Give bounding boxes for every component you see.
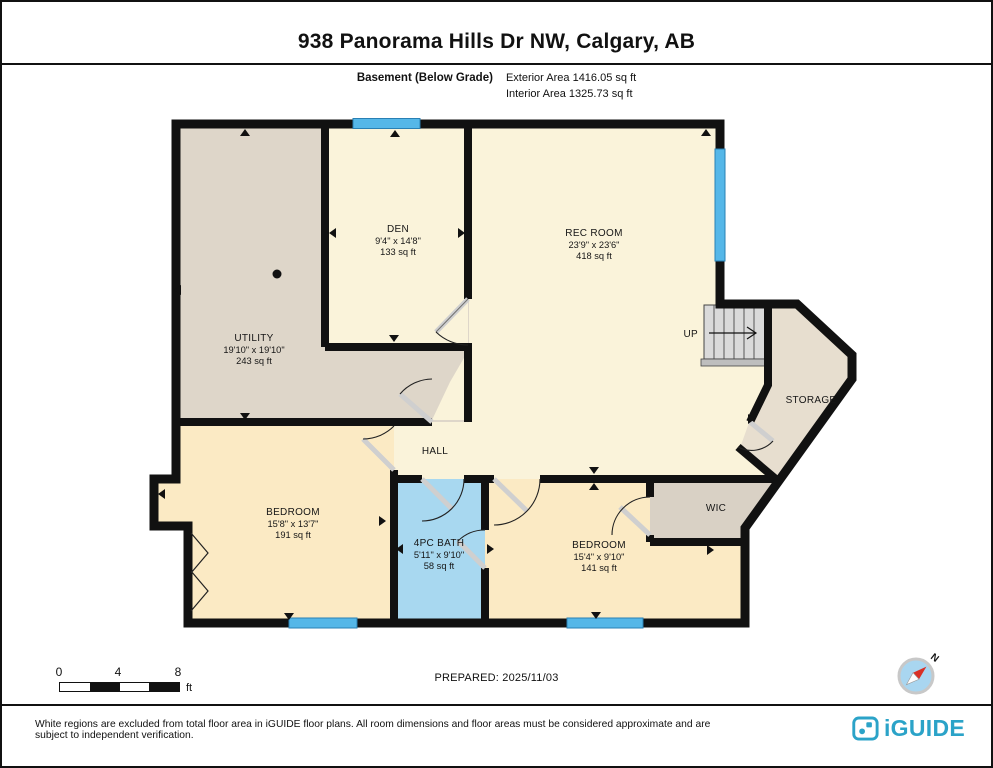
svg-text:243 sq ft: 243 sq ft: [236, 356, 272, 366]
svg-text:15'4" x 9'10": 15'4" x 9'10": [574, 552, 625, 562]
svg-text:HALL: HALL: [422, 446, 448, 457]
iguide-wordmark: iGUIDE: [884, 715, 965, 742]
svg-text:5'11" x 9'10": 5'11" x 9'10": [414, 550, 464, 560]
room-label-storage: STORAGE: [786, 395, 837, 406]
prepared-date: PREPARED: 2025/11/03: [2, 672, 991, 684]
floorplan-drawing: DEN 9'4" x 14'8" 133 sq ft REC ROOM 23'9…: [2, 2, 993, 768]
window: [353, 119, 420, 129]
iguide-logo: iGUIDE: [851, 713, 965, 743]
svg-text:UP: UP: [684, 329, 699, 340]
svg-text:23'9" x 23'6": 23'9" x 23'6": [569, 240, 620, 250]
svg-text:15'8" x 13'7": 15'8" x 13'7": [268, 519, 319, 529]
svg-text:19'10" x 19'10": 19'10" x 19'10": [223, 345, 284, 355]
window: [289, 618, 357, 628]
room-label-hall: HALL: [422, 446, 448, 457]
stairs-up-label: UP: [684, 329, 699, 340]
stairs: [701, 305, 768, 366]
svg-text:WIC: WIC: [706, 503, 726, 514]
room-label-wic: WIC: [706, 503, 726, 514]
svg-text:418 sq ft: 418 sq ft: [576, 251, 612, 261]
svg-text:UTILITY: UTILITY: [234, 333, 273, 344]
svg-text:9'4" x 14'8": 9'4" x 14'8": [375, 236, 421, 246]
floorplan-page: 938 Panorama Hills Dr NW, Calgary, AB Ba…: [0, 0, 993, 768]
svg-text:BEDROOM: BEDROOM: [572, 540, 626, 551]
svg-text:STORAGE: STORAGE: [786, 395, 837, 406]
disclaimer-text: White regions are excluded from total fl…: [35, 719, 735, 741]
window: [715, 149, 725, 261]
svg-text:DEN: DEN: [387, 224, 409, 235]
compass-n-label: N: [928, 652, 940, 665]
window: [567, 618, 643, 628]
svg-text:141 sq ft: 141 sq ft: [581, 563, 617, 573]
svg-text:58 sq ft: 58 sq ft: [424, 561, 455, 571]
compass-icon: N: [886, 643, 950, 707]
iguide-camera-icon: [851, 713, 881, 743]
svg-text:133 sq ft: 133 sq ft: [380, 247, 416, 257]
svg-text:191 sq ft: 191 sq ft: [275, 530, 311, 540]
utility-floor-drain: [273, 270, 282, 279]
footer-bar: White regions are excluded from total fl…: [2, 704, 991, 766]
svg-text:BEDROOM: BEDROOM: [266, 507, 320, 518]
svg-text:4PC BATH: 4PC BATH: [414, 538, 465, 549]
svg-text:REC ROOM: REC ROOM: [565, 228, 622, 239]
